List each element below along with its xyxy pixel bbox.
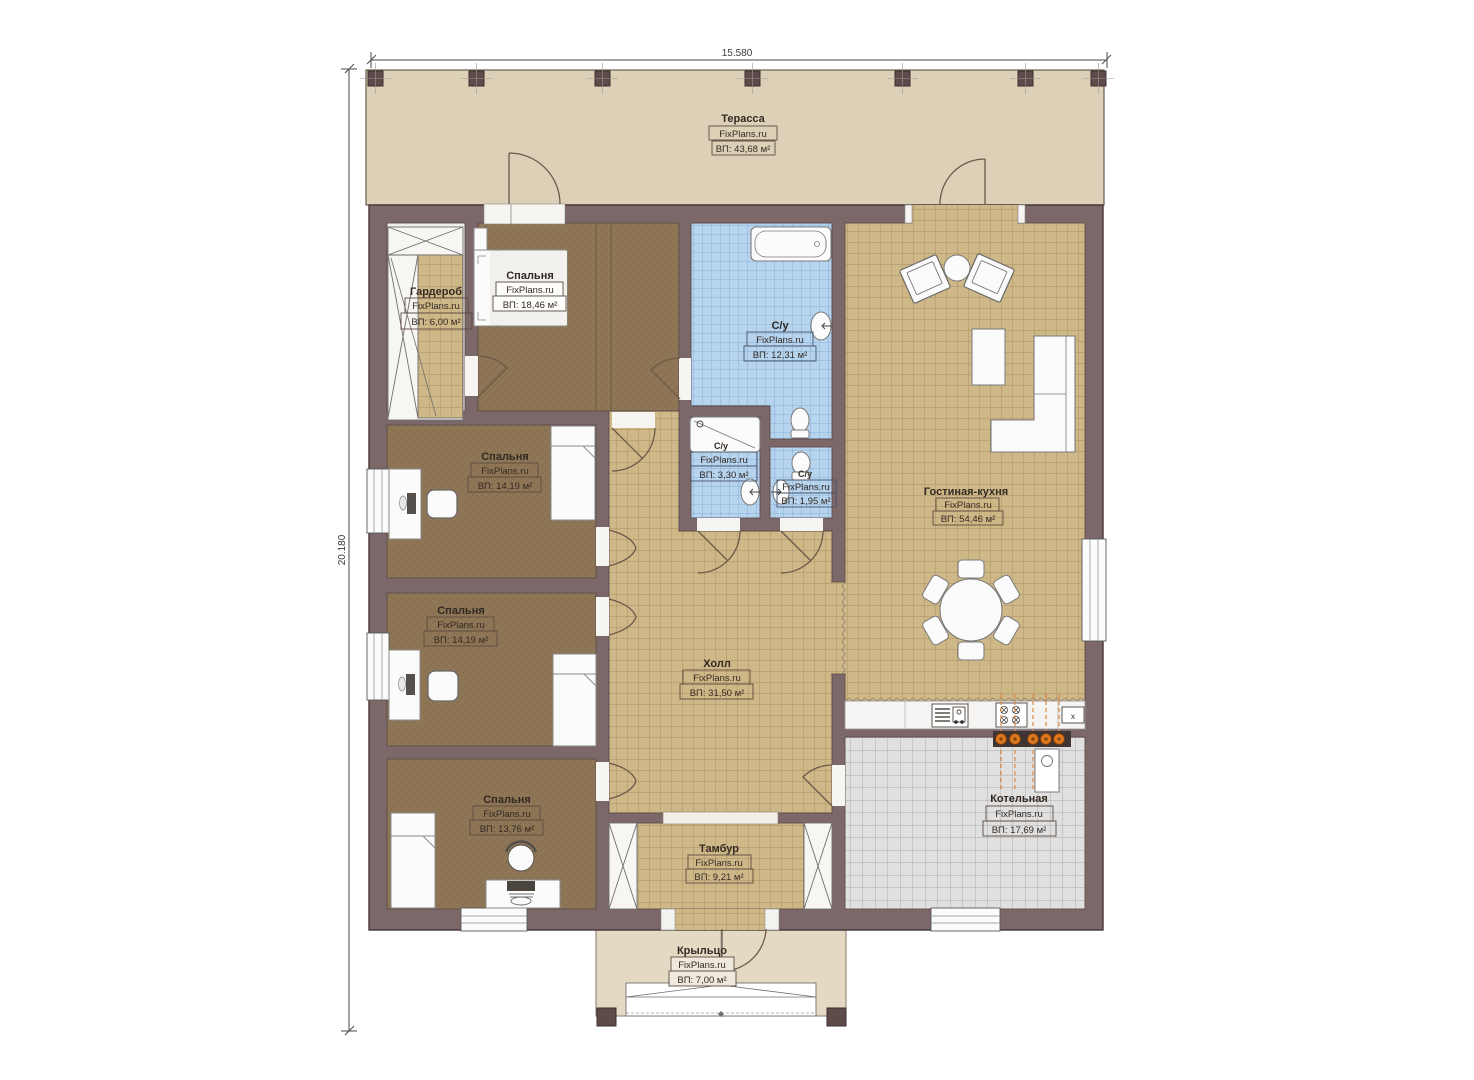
svg-text:ВП: 6,00 м²: ВП: 6,00 м² — [411, 317, 460, 328]
svg-text:ВП: 31,50 м²: ВП: 31,50 м² — [690, 688, 745, 699]
svg-text:ВП: 18,46 м²: ВП: 18,46 м² — [503, 300, 558, 311]
svg-text:15.580: 15.580 — [722, 48, 753, 59]
svg-text:FixPlans.ru: FixPlans.ru — [693, 673, 741, 684]
svg-text:ВП: 14,19 м²: ВП: 14,19 м² — [478, 481, 533, 492]
svg-text:Холл: Холл — [703, 658, 731, 670]
svg-text:ВП: 14,19 м²: ВП: 14,19 м² — [434, 635, 489, 646]
svg-text:FixPlans.ru: FixPlans.ru — [412, 301, 460, 312]
svg-text:ВП: 9,21 м²: ВП: 9,21 м² — [694, 872, 743, 883]
svg-text:ВП: 1,95 м²: ВП: 1,95 м² — [781, 496, 830, 507]
svg-text:Спальня: Спальня — [437, 605, 485, 617]
svg-text:ВП: 54,46 м²: ВП: 54,46 м² — [941, 514, 996, 525]
svg-text:Спальня: Спальня — [483, 794, 531, 806]
svg-text:Гардероб: Гардероб — [410, 286, 462, 298]
svg-text:Котельная: Котельная — [990, 793, 1048, 805]
svg-text:FixPlans.ru: FixPlans.ru — [700, 455, 748, 466]
svg-text:FixPlans.ru: FixPlans.ru — [719, 129, 767, 140]
svg-text:С/у: С/у — [798, 469, 812, 479]
svg-text:FixPlans.ru: FixPlans.ru — [678, 960, 726, 971]
svg-text:ВП: 43,68 м²: ВП: 43,68 м² — [716, 144, 771, 155]
svg-text:Крыльцо: Крыльцо — [677, 945, 727, 957]
svg-text:FixPlans.ru: FixPlans.ru — [481, 466, 529, 477]
svg-text:Спальня: Спальня — [506, 270, 554, 282]
svg-text:FixPlans.ru: FixPlans.ru — [506, 285, 554, 296]
svg-text:С/у: С/у — [771, 320, 789, 332]
svg-text:FixPlans.ru: FixPlans.ru — [782, 482, 830, 493]
svg-text:ВП: 13,76 м²: ВП: 13,76 м² — [480, 824, 535, 835]
svg-text:FixPlans.ru: FixPlans.ru — [437, 620, 485, 631]
svg-text:FixPlans.ru: FixPlans.ru — [995, 809, 1043, 820]
svg-text:20.180: 20.180 — [337, 534, 348, 565]
svg-text:FixPlans.ru: FixPlans.ru — [944, 500, 992, 511]
svg-text:Тамбур: Тамбур — [699, 843, 739, 855]
svg-text:Терасса: Терасса — [721, 113, 765, 125]
svg-text:С/у: С/у — [714, 441, 728, 451]
svg-text:Гостиная-кухня: Гостиная-кухня — [924, 486, 1008, 498]
svg-text:ВП: 7,00 м²: ВП: 7,00 м² — [677, 975, 726, 986]
svg-text:ВП: 12,31 м²: ВП: 12,31 м² — [753, 350, 808, 361]
svg-text:ВП: 17,69 м²: ВП: 17,69 м² — [992, 825, 1047, 836]
svg-text:Спальня: Спальня — [481, 451, 529, 463]
svg-text:FixPlans.ru: FixPlans.ru — [756, 335, 804, 346]
svg-text:FixPlans.ru: FixPlans.ru — [695, 858, 743, 869]
svg-text:ВП: 3,30 м²: ВП: 3,30 м² — [699, 470, 748, 481]
svg-text:FixPlans.ru: FixPlans.ru — [483, 809, 531, 820]
